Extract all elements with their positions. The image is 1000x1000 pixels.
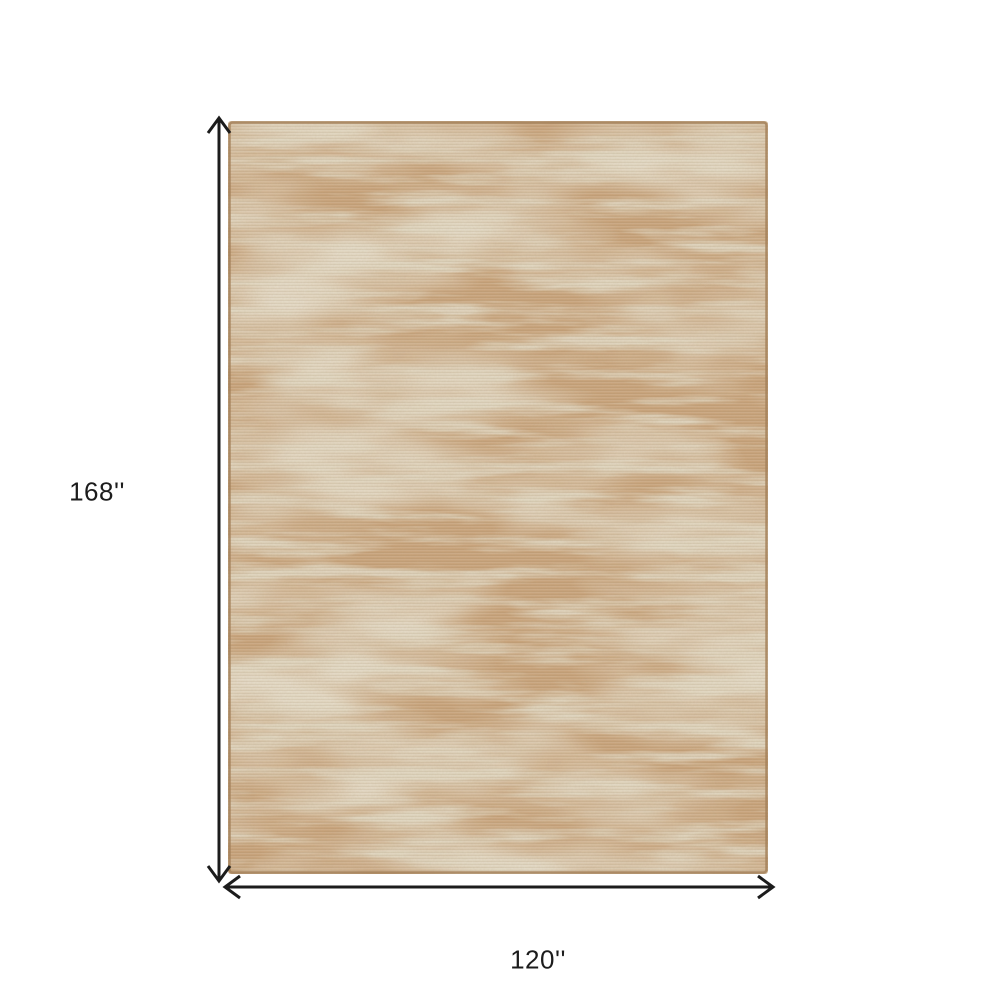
width-dimension-label: 120'' — [510, 945, 566, 976]
product-dimension-diagram: 168'' 120'' — [0, 0, 1000, 1000]
arrow-down-icon — [208, 866, 230, 881]
arrow-up-icon — [208, 118, 230, 133]
arrow-left-icon — [225, 876, 240, 898]
rug-texture — [228, 121, 768, 874]
height-dimension-label: 168'' — [69, 477, 125, 508]
width-dimension-arrow — [225, 876, 773, 898]
arrow-right-icon — [758, 876, 773, 898]
rug-image — [228, 121, 768, 874]
height-dimension-arrow — [208, 118, 230, 881]
